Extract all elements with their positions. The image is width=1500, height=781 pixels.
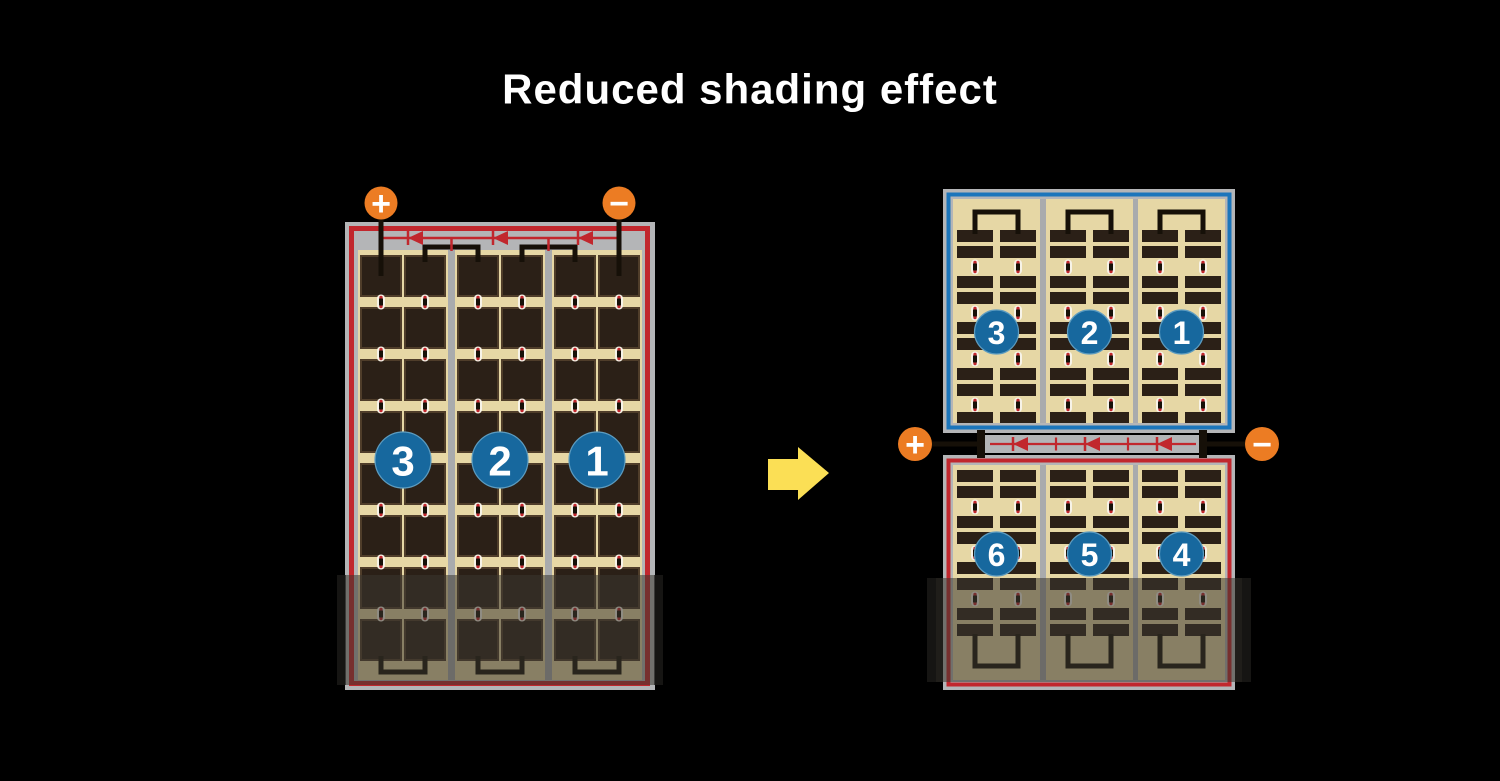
string-number: 4 bbox=[1173, 537, 1191, 573]
string-badge: 2 bbox=[1068, 310, 1112, 354]
string-badge: 5 bbox=[1068, 532, 1112, 576]
terminal-symbol: + bbox=[371, 185, 391, 223]
string-badge: 6 bbox=[975, 532, 1019, 576]
terminal-symbol: − bbox=[609, 185, 629, 223]
string-number: 5 bbox=[1081, 537, 1099, 573]
terminal-symbol: − bbox=[1252, 426, 1272, 464]
shading-overlay bbox=[927, 578, 1251, 682]
string-number: 2 bbox=[1081, 315, 1099, 351]
string-number: 2 bbox=[488, 438, 511, 485]
string-number: 3 bbox=[988, 315, 1006, 351]
string-number: 1 bbox=[585, 438, 608, 485]
canvas-background bbox=[0, 0, 1500, 781]
string-badge: 2 bbox=[472, 432, 528, 488]
string-badge: 3 bbox=[375, 432, 431, 488]
string-badge: 1 bbox=[569, 432, 625, 488]
terminal-symbol: + bbox=[905, 426, 925, 464]
shading-effect-diagram: +−321321654+−Reduced shading effect bbox=[0, 0, 1500, 781]
string-badge: 1 bbox=[1160, 310, 1204, 354]
string-badge: 3 bbox=[975, 310, 1019, 354]
string-number: 1 bbox=[1173, 315, 1191, 351]
string-badge: 4 bbox=[1160, 532, 1204, 576]
string-number: 6 bbox=[988, 537, 1006, 573]
string-number: 3 bbox=[391, 438, 414, 485]
half-cell-module-top: 321 bbox=[943, 189, 1235, 433]
shading-overlay bbox=[337, 575, 663, 685]
page-title: Reduced shading effect bbox=[502, 66, 998, 113]
